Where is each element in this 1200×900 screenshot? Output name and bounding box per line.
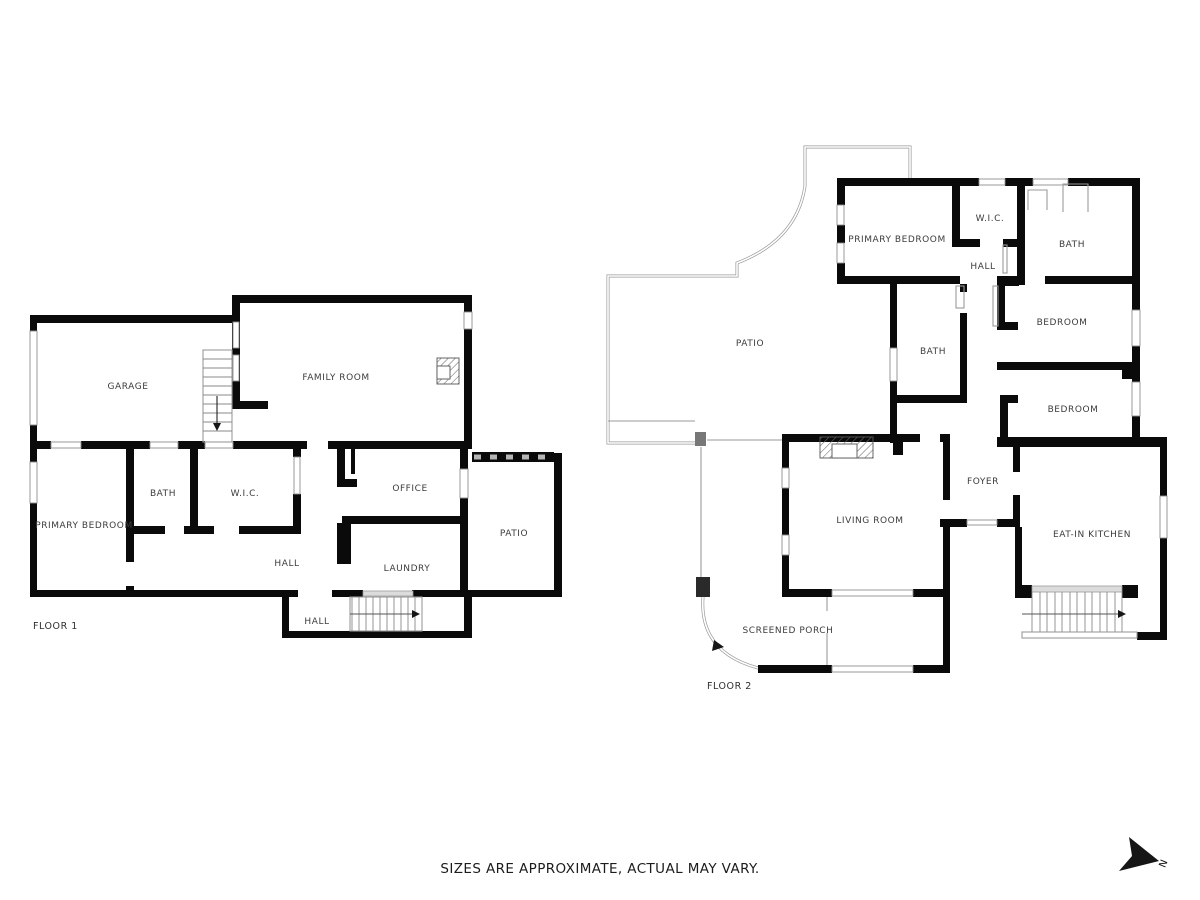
floor1-plan: GARAGE FAMILY ROOM PRIMARY BEDROOM BATH … — [30, 295, 562, 638]
room-label-hall-f1: HALL — [274, 559, 299, 569]
porch-post-lower — [696, 577, 710, 597]
north-arrow-icon: N — [1119, 837, 1168, 871]
room-label-bedroom-upper: BEDROOM — [1037, 318, 1088, 328]
room-label-primary-bedroom-f2: PRIMARY BEDROOM — [848, 235, 946, 245]
room-label-eat-in-kitchen: EAT-IN KITCHEN — [1053, 530, 1131, 540]
floor2-title: FLOOR 2 — [707, 681, 752, 692]
room-label-laundry: LAUNDRY — [384, 564, 431, 574]
floor2-plan: PATIO PRIMARY BEDROOM W.I.C. BATH HALL B… — [608, 147, 1167, 692]
room-label-hall-lower-f1: HALL — [304, 617, 329, 627]
room-label-bath-upper: BATH — [1059, 240, 1085, 250]
floorplan-page: GARAGE FAMILY ROOM PRIMARY BEDROOM BATH … — [0, 0, 1200, 900]
floor1-fireplace-icon — [437, 358, 459, 384]
room-label-garage: GARAGE — [108, 382, 149, 392]
floor1-windows — [30, 312, 472, 596]
floor2-windows — [782, 179, 1167, 672]
floor2-fireplace-icon — [820, 437, 873, 458]
floor2-walls — [758, 178, 1167, 673]
room-label-bath-middle: BATH — [920, 347, 946, 357]
floor2-patio-outline — [608, 147, 910, 578]
room-label-screened-porch: SCREENED PORCH — [743, 626, 834, 636]
room-label-patio-f2: PATIO — [736, 339, 764, 349]
room-label-bath-f1: BATH — [150, 489, 176, 499]
room-label-foyer: FOYER — [967, 477, 999, 487]
porch-post-upper — [695, 432, 706, 446]
floor1-stairs-up — [203, 350, 232, 442]
room-label-primary-bedroom-f1: PRIMARY BEDROOM — [35, 521, 133, 531]
room-label-hall-f2: HALL — [970, 262, 995, 272]
stair-direction-arrow-down — [213, 423, 221, 431]
floor2-kitchen-stairs — [1022, 586, 1137, 638]
floorplan-drawing: GARAGE FAMILY ROOM PRIMARY BEDROOM BATH … — [0, 0, 1200, 900]
room-label-office: OFFICE — [392, 484, 427, 494]
floor1-stairs-down — [350, 597, 422, 631]
room-label-bedroom-lower: BEDROOM — [1048, 405, 1099, 415]
room-label-family-room: FAMILY ROOM — [302, 373, 369, 383]
room-label-patio-f1: PATIO — [500, 529, 528, 539]
floor1-room-labels: GARAGE FAMILY ROOM PRIMARY BEDROOM BATH … — [35, 373, 528, 627]
room-label-living-room: LIVING ROOM — [836, 516, 903, 526]
north-label: N — [1155, 858, 1168, 869]
floor1-title: FLOOR 1 — [33, 621, 78, 632]
stair-direction-arrow-right — [412, 610, 420, 618]
room-label-wic-f1: W.I.C. — [231, 489, 260, 499]
size-disclaimer-text: SIZES ARE APPROXIMATE, ACTUAL MAY VARY. — [440, 861, 759, 877]
room-label-wic-f2: W.I.C. — [976, 214, 1005, 224]
